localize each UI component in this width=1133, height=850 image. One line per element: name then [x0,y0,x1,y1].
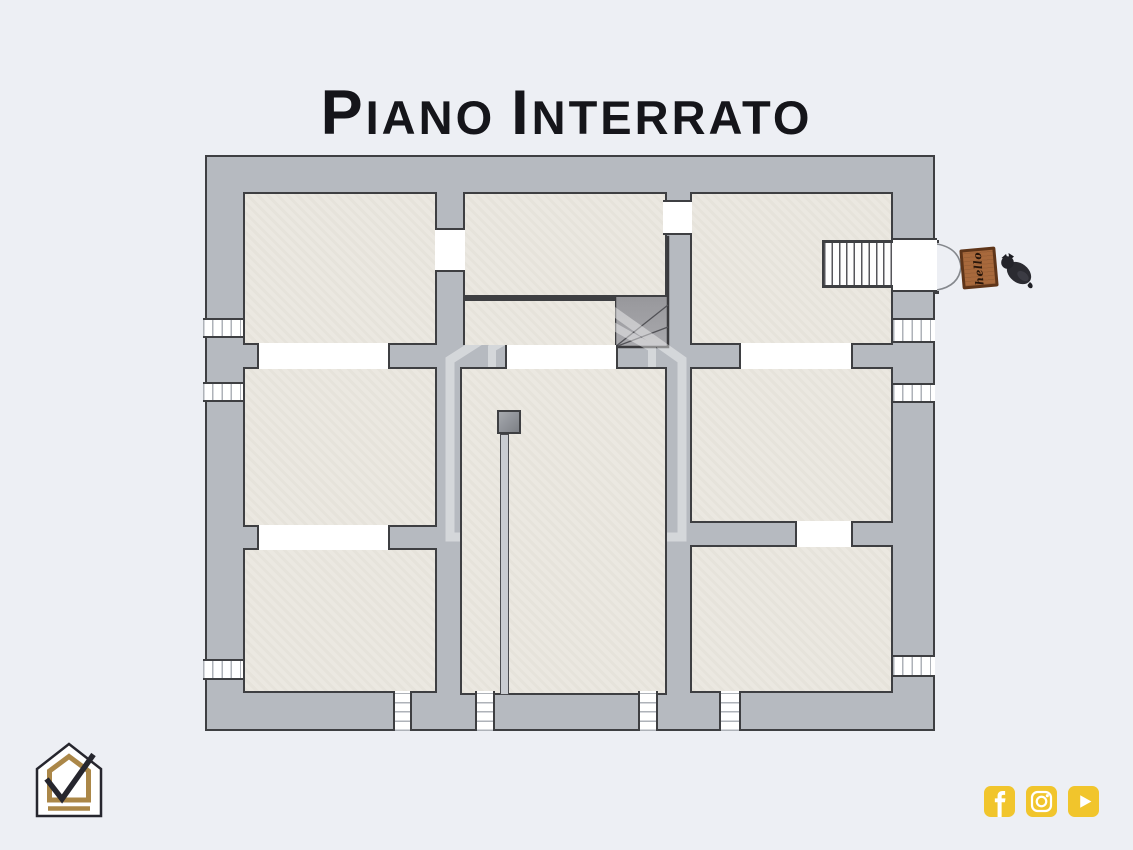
opening-landing-central [505,345,618,369]
door-midright-bottomright [795,521,853,547]
room-mid-left [243,367,437,527]
social-icons [984,786,1099,817]
room-top-middle [463,192,667,297]
dog-figure [997,247,1039,293]
flue-partition-wall [500,434,509,695]
instagram-icon[interactable] [1026,786,1057,817]
title-word2-initial: I [511,78,532,148]
doormat-label: hello [971,251,987,285]
window-left-2 [203,382,243,402]
page-title: PIANOINTERRATO [0,82,1133,145]
window-bottom-2 [475,691,495,731]
youtube-icon[interactable] [1068,786,1099,817]
door-topleft-midleft [257,343,390,369]
page-root: PIANOINTERRATO [0,0,1133,850]
house-check-logo [34,741,104,819]
room-bottom-left [243,548,437,693]
door-topmiddle-topright [663,200,692,235]
door-topleft-topmiddle [435,228,465,272]
window-left-3 [203,659,243,680]
room-central [460,367,667,695]
facebook-icon[interactable] [984,786,1015,817]
title-word1-rest: IANO [366,91,496,144]
title-word2-rest: NTERRATO [532,91,813,144]
window-bottom-3 [638,691,658,731]
door-topright-midright [739,343,853,369]
room-bottom-right [690,545,893,693]
window-right-2 [893,383,935,403]
window-bottom-1 [393,691,412,731]
stair-landing [463,297,615,345]
hello-doormat: hello [959,247,998,290]
window-left-1 [203,318,243,338]
window-right-1 [893,318,935,343]
chimney-pillar [497,410,521,434]
title-word1-initial: P [321,78,366,148]
window-bottom-4 [719,691,741,731]
entrance-opening [893,238,937,292]
room-mid-right [690,367,893,523]
window-right-3 [893,655,935,677]
room-top-left [243,192,437,345]
entrance-stair [822,240,893,288]
door-midleft-bottomleft [257,525,390,550]
